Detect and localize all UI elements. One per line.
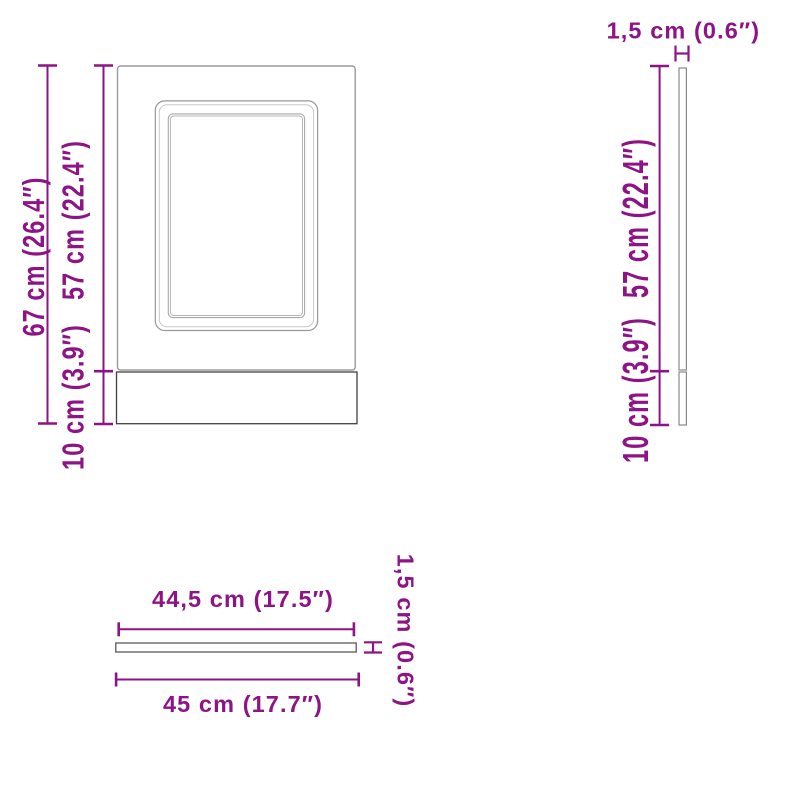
svg-text:1,5 cm (0.6″): 1,5 cm (0.6″) [607,18,761,44]
svg-text:57 cm (22.4″): 57 cm (22.4″) [56,140,91,300]
svg-text:44,5 cm (17.5″): 44,5 cm (17.5″) [152,586,334,612]
svg-text:57 cm (22.4″): 57 cm (22.4″) [616,138,656,298]
svg-text:67 cm (26.4″): 67 cm (26.4″) [16,176,51,336]
svg-text:1,5 cm (0.6″): 1,5 cm (0.6″) [393,554,419,708]
svg-text:10 cm (3.9″): 10 cm (3.9″) [616,317,656,463]
svg-text:45 cm (17.7″): 45 cm (17.7″) [163,691,323,717]
svg-text:10 cm (3.9″): 10 cm (3.9″) [56,324,91,470]
